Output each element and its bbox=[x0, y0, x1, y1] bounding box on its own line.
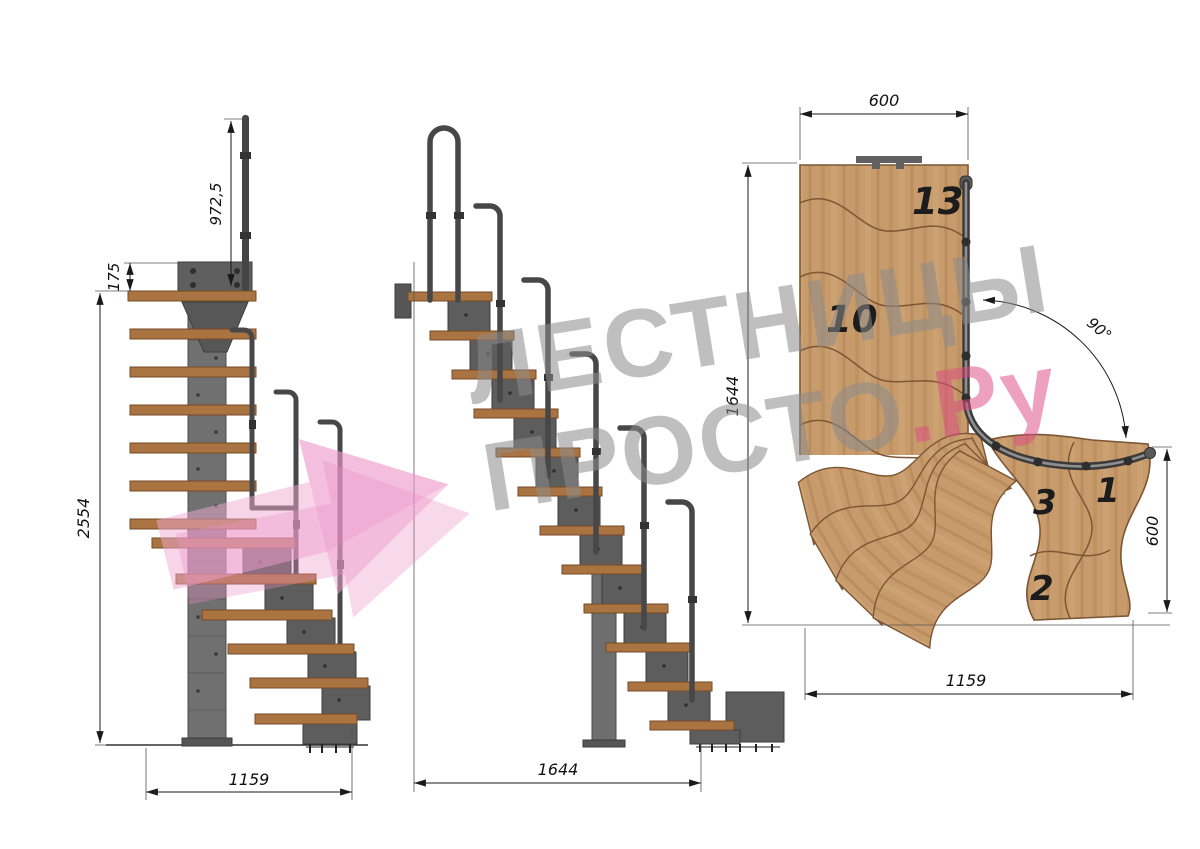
front-column-base-plate bbox=[182, 738, 232, 746]
side-view: 1644 bbox=[395, 128, 784, 792]
dim-plan-bottom-length: 1159 bbox=[946, 671, 987, 690]
dim-side-length: 1644 bbox=[538, 760, 579, 779]
step-label-3: 3 bbox=[1033, 483, 1057, 523]
side-anchor-bolts bbox=[696, 744, 780, 752]
dim-front-width: 1159 bbox=[229, 770, 270, 789]
step-label-1: 1 bbox=[1096, 471, 1120, 511]
front-handrail-post bbox=[242, 115, 249, 293]
dim-front-total-height: 2554 bbox=[74, 498, 93, 539]
dim-plan-angle: 90° bbox=[1083, 314, 1115, 345]
dim-plan-right-depth: 600 bbox=[1143, 516, 1162, 547]
dim-plan-side-length: 1644 bbox=[723, 376, 742, 417]
dim-plan-top-width: 600 bbox=[869, 91, 900, 110]
technical-drawing: 972,5 175 2554 1159 bbox=[0, 0, 1200, 849]
step-label-2: 2 bbox=[1030, 569, 1054, 609]
plan-wall-bracket bbox=[856, 156, 922, 163]
front-mount-plate bbox=[178, 262, 252, 294]
step-label-10: 10 bbox=[826, 298, 878, 341]
drawing-sheet: 972,5 175 2554 1159 bbox=[0, 0, 1200, 849]
step-label-13: 13 bbox=[912, 180, 964, 223]
front-view: 972,5 175 2554 1159 bbox=[74, 115, 370, 800]
plan-view: 13 10 3 1 2 600 1644 90° 600 1159 bbox=[723, 91, 1172, 700]
dim-front-rail-height: 972,5 bbox=[207, 183, 225, 226]
dim-front-plate-offset: 175 bbox=[105, 263, 123, 292]
plan-winder-treads bbox=[796, 429, 1032, 656]
